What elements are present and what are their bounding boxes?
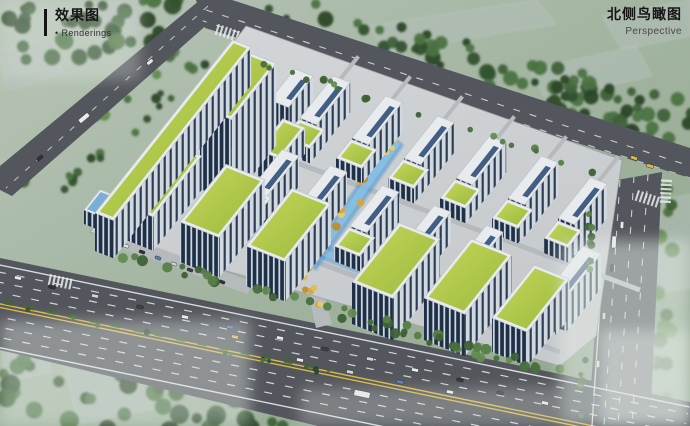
label-renderings-subtitle: • Renderings <box>55 28 111 38</box>
label-perspective-subtitle: Perspective <box>607 26 682 37</box>
label-perspective: 北侧鸟瞰图 Perspective <box>607 6 682 37</box>
presentation-slide: 效果图 • Renderings 北侧鸟瞰图 Perspective <box>0 0 690 426</box>
label-perspective-title: 北侧鸟瞰图 <box>607 6 682 24</box>
car <box>620 221 624 228</box>
aerial-rendering-canvas <box>0 0 690 426</box>
label-renderings-title: 效果图 <box>55 7 111 25</box>
label-accent-bar <box>44 9 47 36</box>
label-renderings: 效果图 • Renderings <box>44 7 111 38</box>
